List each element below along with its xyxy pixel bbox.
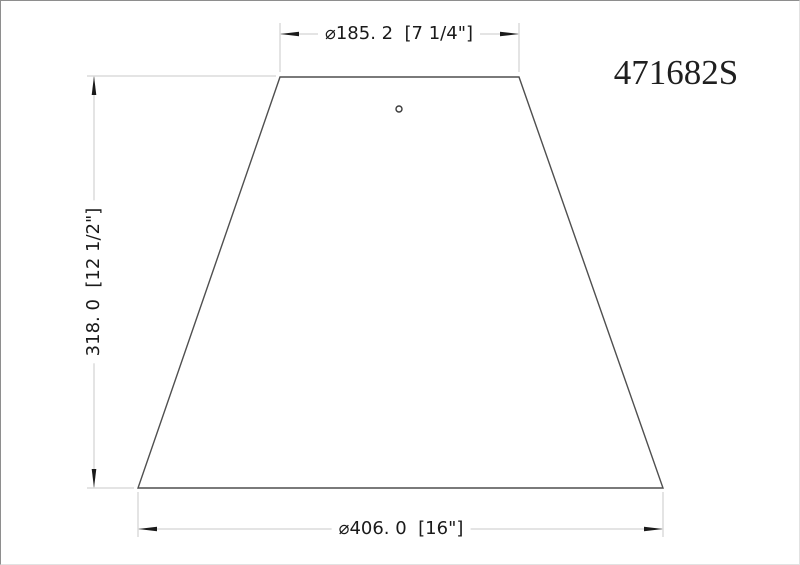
height-dimension-label: 318. 0 [12 1/2"]: [84, 201, 104, 364]
arrow-top-right-icon: [500, 32, 519, 37]
mounting-hole: [396, 106, 402, 112]
extension-lines: [87, 23, 663, 537]
arrow-height-up-icon: [92, 76, 97, 95]
dimension-arrowheads: [92, 32, 663, 532]
top-diameter-dimension-label: ⌀185. 2 [7 1/4"]: [318, 24, 480, 44]
part-number: 471682S: [614, 53, 738, 93]
trapezoid-outline: [138, 77, 663, 488]
dimension-lines: [94, 34, 662, 529]
arrow-height-down-icon: [92, 469, 97, 488]
arrow-bottom-right-icon: [644, 527, 663, 532]
arrow-bottom-left-icon: [138, 527, 157, 532]
drawing-sheet: ⌀185. 2 [7 1/4"] 318. 0 [12 1/2"] ⌀406. …: [0, 0, 800, 565]
arrow-top-left-icon: [280, 32, 299, 37]
bottom-diameter-dimension-label: ⌀406. 0 [16"]: [332, 519, 471, 539]
